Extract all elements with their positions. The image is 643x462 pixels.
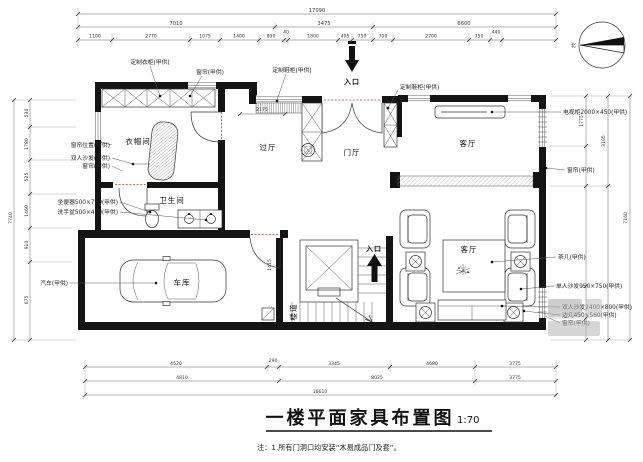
cloakroom: 衣帽间	[102, 89, 215, 181]
dim-top-s9: 750	[358, 34, 367, 40]
dim-bot-total: 16610	[313, 389, 328, 395]
dim-interior-hall: 2175	[256, 107, 268, 113]
dimension-lines-top: 17090 7010 3475 6600 1100 2770 1075 1400…	[76, 8, 558, 48]
down-arrow-icon	[345, 60, 359, 72]
drawing-note: 注：1.所有门洞口均安装“木易成品门及套”。	[257, 443, 401, 452]
dim-left-s4: 1460	[24, 205, 30, 217]
toilet-tank	[145, 204, 159, 210]
stair-hall: 楼道 入口	[288, 240, 386, 322]
armchair	[400, 210, 430, 248]
dim-top-s3: 1075	[199, 34, 211, 40]
bathroom: 卫生间	[145, 195, 222, 228]
dim-bot-r2-3: 3775	[509, 375, 521, 381]
label-car: 汽车(甲供)	[40, 279, 68, 287]
dim-right-s1: 1775	[579, 115, 585, 127]
garage: 车库 1415	[120, 257, 274, 321]
dim-top-s13: 440	[492, 30, 501, 36]
dim-top-mid-3: 6600	[457, 21, 470, 27]
dim-bot-r1-3: 3345	[328, 361, 340, 367]
north-label: 北	[571, 41, 577, 49]
drawing-title: 一楼平面家具布置图	[266, 407, 455, 429]
living-lower: 客厅	[400, 210, 535, 322]
armchair	[400, 268, 430, 306]
dim-top-s4: 1400	[233, 34, 245, 40]
room-label-cloakroom: 衣帽间	[125, 136, 151, 146]
label-curtain-left: 窗帘(甲供)	[82, 162, 110, 170]
label-tv-cabinet: 电视柜2000×450(甲供)	[563, 108, 627, 116]
armchair	[505, 210, 535, 248]
beam-hatch	[398, 176, 533, 186]
dim-top-s5: 890	[267, 34, 276, 40]
room-label-foyer: 门厅	[344, 148, 361, 157]
room-label-living-lower: 客厅	[461, 244, 478, 254]
dim-bot-r2-2: 8025	[371, 375, 383, 381]
north-compass: 北	[571, 22, 625, 68]
room-label-bathroom: 卫生间	[159, 195, 185, 205]
elevator-shaft	[300, 240, 358, 302]
entry-top-label: 入口	[343, 78, 360, 86]
entry-arrow-top: 入口	[343, 41, 360, 86]
label-sofa-left: 双人沙发(甲供)	[71, 154, 110, 162]
lamp-side-table	[406, 252, 425, 271]
entry-stairs-label: 入口	[365, 245, 382, 253]
dim-right-s2: 3105	[601, 135, 607, 147]
label-curtain-right-upper: 窗帘(甲供)	[567, 166, 595, 174]
label-wardrobe: 定制衣柜(甲供)	[130, 58, 169, 66]
armchair	[505, 268, 535, 306]
dim-top-s2: 2770	[145, 34, 157, 40]
living-upper: 客厅	[435, 106, 505, 148]
dim-bot-r1-5: 3775	[509, 361, 521, 367]
dim-bot-r1-2: 290	[269, 358, 278, 364]
lamp-side-table	[416, 303, 435, 322]
label-shoe-top: 定制鞋柜(甲供)	[272, 66, 311, 74]
dim-right-total: 7160	[623, 212, 629, 224]
dim-top-s7: 1800	[307, 34, 319, 40]
room-label-passage: 过厅	[260, 142, 277, 152]
dim-top-s1: 1100	[89, 34, 101, 40]
dim-top-mid-2: 3475	[317, 21, 330, 27]
toilet	[146, 211, 159, 228]
floor-plan-drawing: 17090 7010 3475 6600 1100 2770 1075 1400…	[0, 0, 643, 462]
dim-interior-garage: 1415	[267, 259, 273, 271]
dim-left-s3: 525	[24, 173, 30, 182]
dim-top-total: 17090	[309, 8, 326, 14]
dim-bot-r1-4: 4680	[426, 361, 438, 367]
label-tea-table: 茶几(甲供)	[558, 253, 586, 261]
up-arrow-icon	[367, 254, 382, 266]
chaise-lounge	[147, 121, 179, 181]
label-basin: 洗手盆500×400(甲供)	[58, 208, 119, 216]
dim-top-s8: 495	[341, 34, 350, 40]
room-label-living-upper: 客厅	[460, 138, 477, 148]
passage-foyer: 过厅 门厅 2175	[238, 103, 397, 161]
room-label-stairwell: 楼道	[288, 304, 298, 321]
title-block: 一楼平面家具布置图 1:70 注：1.所有门洞口均安装“木易成品门及套”。	[257, 407, 492, 452]
label-shoe-right: 定制鞋柜(甲供)	[400, 83, 439, 91]
dim-left-s2: 1780	[24, 138, 30, 150]
dim-top-s10: 700	[379, 34, 388, 40]
room-label-garage: 车库	[174, 277, 191, 287]
lamp-side-table	[511, 252, 530, 271]
dim-top-mid-1: 7010	[169, 21, 182, 27]
label-toilet: 坐便器500×720(甲供)	[58, 198, 119, 206]
dimension-lines-bottom: 4520 290 3345 4680 3775 4810 8025 3775 1…	[83, 358, 558, 398]
dim-bot-r2-1: 4810	[176, 375, 188, 381]
label-curtain-pos-left: 窗帘位置(甲供)	[71, 141, 110, 149]
dim-left-s5: 910	[24, 241, 30, 250]
dim-bot-r1-1: 4520	[170, 361, 182, 367]
dim-top-s12: 750	[475, 34, 484, 40]
drawing-scale: 1:70	[457, 415, 479, 426]
floor-plan-page: 17090 7010 3475 6600 1100 2770 1075 1400…	[0, 0, 643, 462]
dimension-lines-left: 7740 530 1780 525 1460 910 675	[8, 98, 76, 342]
dim-left-total: 7740	[8, 212, 14, 224]
dim-top-s6: 40	[283, 30, 289, 36]
dim-left-s1: 530	[24, 109, 30, 118]
dim-left-s6: 675	[24, 296, 30, 305]
label-curtain-top: 窗帘(甲供)	[196, 68, 224, 76]
dim-top-s11: 2700	[425, 34, 437, 40]
